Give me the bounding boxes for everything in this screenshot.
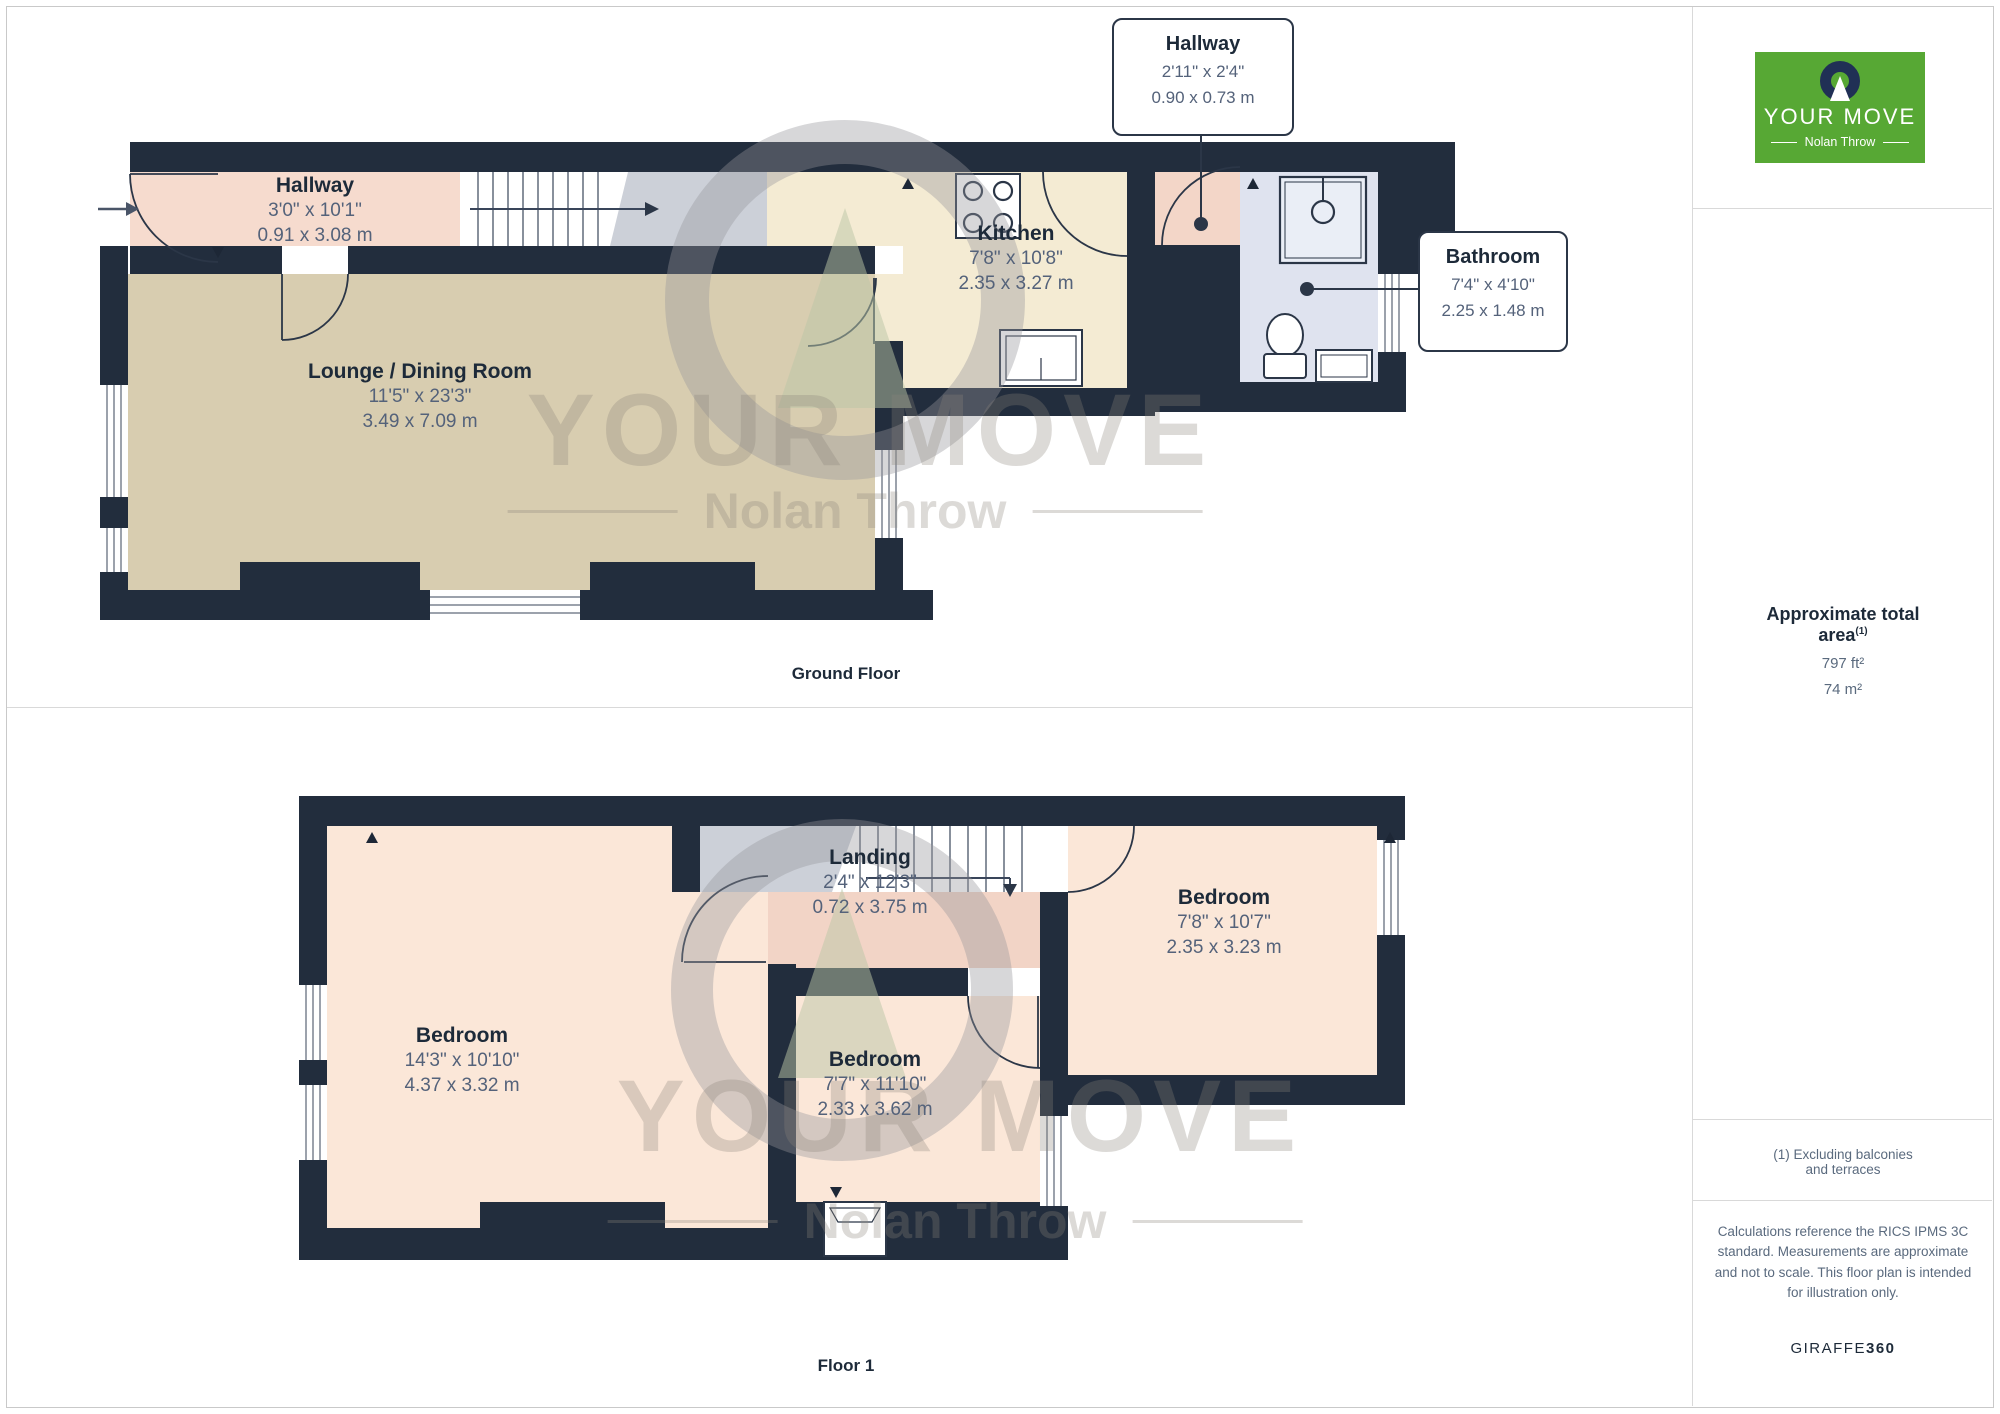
floor-1-caption: Floor 1 (818, 1356, 875, 1376)
radiator-icon (824, 1202, 886, 1256)
room-small-hallway-floor (1155, 172, 1240, 245)
toilet-icon (1264, 314, 1306, 378)
ground-floor-caption: Ground Floor (792, 664, 901, 684)
callout-hallway: Hallway 2'11" x 2'4" 0.90 x 0.73 m (1112, 18, 1294, 136)
label-kitchen: Kitchen 7'8" x 10'8" 2.35 x 3.27 m (958, 220, 1073, 297)
your-move-logo-icon (1820, 61, 1860, 101)
label-bedroom-left: Bedroom 14'3" x 10'10" 4.37 x 3.32 m (404, 1022, 519, 1099)
your-move-logo: YOUR MOVE Nolan Throw (1755, 52, 1925, 163)
label-landing: Landing 2'4" x 12'3" 0.72 x 3.75 m (812, 844, 927, 921)
label-bedroom-right: Bedroom 7'8" x 10'7" 2.35 x 3.23 m (1166, 884, 1281, 961)
logo-subbrand-text: Nolan Throw (1771, 135, 1910, 149)
callout-bathroom: Bathroom 7'4" x 4'10" 2.25 x 1.48 m (1418, 231, 1568, 352)
bathroom-sink-icon (1316, 350, 1372, 382)
logo-brand-text: YOUR MOVE (1764, 104, 1916, 130)
label-lounge: Lounge / Dining Room 11'5" x 23'3" 3.49 … (308, 358, 532, 435)
label-hallway: Hallway 3'0" x 10'1" 0.91 x 3.08 m (257, 172, 372, 249)
label-bedroom-middle: Bedroom 7'7" x 11'10" 2.33 x 3.62 m (817, 1046, 932, 1123)
floorplan-page: { "colors": {"wall":"#222d3d","logo_gree… (0, 0, 2000, 1414)
shower-icon (1280, 177, 1366, 263)
